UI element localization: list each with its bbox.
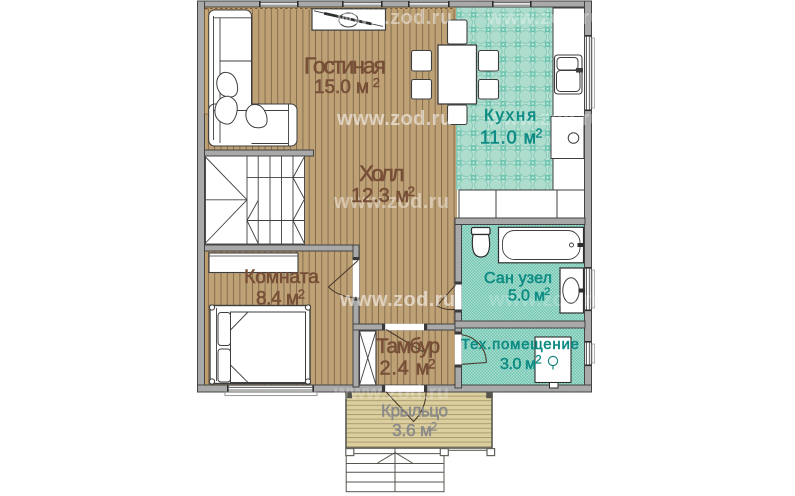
svg-text:3.6 м: 3.6 м	[392, 420, 432, 440]
svg-text:Комната: Комната	[244, 266, 319, 288]
svg-text:5.0 м: 5.0 м	[508, 288, 545, 305]
svg-text:www.zod.ru: www.zod.ru	[336, 108, 452, 130]
svg-text:2: 2	[536, 127, 543, 141]
svg-text:12.3 м: 12.3 м	[351, 185, 409, 207]
svg-text:2: 2	[298, 287, 305, 302]
svg-text:11.0 м: 11.0 м	[480, 128, 536, 148]
svg-text:3.0 м: 3.0 м	[500, 356, 536, 373]
svg-text:2: 2	[408, 184, 416, 199]
svg-text:www.zod.ru: www.zod.ru	[339, 289, 455, 311]
svg-text:2: 2	[428, 357, 436, 372]
svg-text:Кухня: Кухня	[484, 107, 536, 125]
svg-text:Тех.помещение: Тех.помещение	[461, 336, 579, 353]
svg-text:2: 2	[373, 75, 380, 90]
svg-text:2.4 м: 2.4 м	[380, 358, 430, 380]
svg-text:2: 2	[535, 355, 541, 367]
svg-text:2: 2	[431, 420, 438, 434]
svg-text:Тамбур: Тамбур	[376, 335, 440, 358]
svg-text:Крыльцо: Крыльцо	[381, 401, 448, 421]
svg-text:15.0 м: 15.0 м	[314, 77, 369, 98]
svg-text:8.4 м: 8.4 м	[256, 289, 299, 310]
svg-text:www.zod.ru: www.zod.ru	[486, 7, 602, 29]
svg-text:Холл: Холл	[359, 161, 405, 186]
svg-text:www.zod.ru: www.zod.ru	[336, 7, 452, 29]
svg-text:Сан узел: Сан узел	[484, 270, 552, 287]
svg-text:2: 2	[544, 286, 550, 298]
